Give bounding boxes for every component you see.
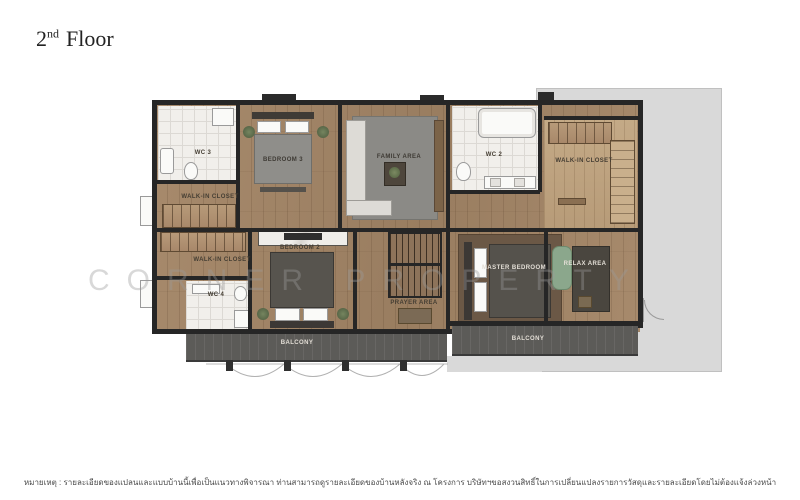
title-ordinal: nd (47, 27, 59, 41)
bed-headboard (270, 321, 334, 328)
sink (490, 178, 501, 187)
stair-divider (388, 263, 442, 266)
wardrobe (160, 232, 246, 252)
room-label-relax-area: RELAX AREA (564, 261, 607, 267)
sofa (346, 120, 366, 204)
wall (544, 230, 548, 326)
bed-blanket (270, 252, 334, 308)
title-number: 2 (36, 26, 47, 51)
room-label-master-bedroom: MASTER BEDROOM (482, 265, 546, 271)
plant (389, 167, 400, 178)
wall (338, 103, 342, 230)
plant (243, 126, 255, 138)
wall (450, 190, 540, 194)
room-label-wc4: WC 4 (208, 292, 225, 298)
washbasin (160, 148, 174, 174)
room-label-bedroom2: BEDROOM 2 (280, 245, 320, 251)
bed-blanket (489, 244, 551, 318)
wardrobe (162, 204, 236, 228)
balcony-post (400, 360, 407, 371)
bed-bench (260, 187, 306, 192)
side-table (578, 296, 592, 308)
pillow (285, 121, 309, 133)
chaise-lounge (552, 246, 572, 290)
wall (152, 100, 643, 105)
wardrobe (548, 122, 612, 144)
room-label-wc3: WC 3 (195, 150, 212, 156)
shower (212, 108, 234, 126)
floor-plan-page: 2ndFloor CORNER PROPERTY (0, 0, 800, 500)
plant (257, 308, 269, 320)
wall (638, 100, 643, 328)
room-label-prayer-area: PRAYER AREA (390, 300, 437, 306)
room-label-walkin-right: WALK-IN CLOSET (555, 158, 612, 164)
balcony-post (284, 360, 291, 371)
page-title: 2ndFloor (36, 26, 114, 52)
awning-arcs (206, 363, 448, 390)
toilet (234, 286, 247, 301)
bench (558, 198, 586, 205)
wall (155, 276, 250, 280)
toilet (456, 162, 471, 181)
wall (446, 103, 450, 332)
wall (152, 100, 157, 334)
tv (284, 233, 322, 240)
wall (155, 228, 640, 232)
wall (248, 230, 252, 332)
pillow (474, 282, 487, 312)
tv-console (434, 120, 444, 212)
sofa (346, 200, 392, 216)
room-label-bedroom3: BEDROOM 3 (263, 157, 303, 163)
bed-headboard (464, 242, 472, 320)
wall (544, 116, 641, 120)
wall (538, 103, 542, 192)
pillow (257, 121, 281, 133)
pillow (474, 248, 487, 278)
bathtub (478, 108, 536, 138)
balcony-post (342, 360, 349, 371)
title-word: Floor (66, 26, 114, 51)
closet-shelves (610, 140, 635, 224)
plant (337, 308, 349, 320)
toilet (184, 162, 198, 180)
room-label-family-area: FAMILY AREA (377, 154, 421, 160)
balcony-right-deck (452, 326, 638, 356)
wall (353, 230, 357, 332)
room-label-walkin-left: WALK-IN CLOSET (193, 257, 250, 263)
pillow (275, 308, 300, 321)
bed-headboard (252, 112, 314, 119)
room-label-balcony-right: BALCONY (512, 336, 544, 342)
plant (317, 126, 329, 138)
sink (514, 178, 525, 187)
wall (152, 329, 452, 334)
room-label-wc2: WC 2 (486, 152, 503, 158)
wall (155, 180, 238, 184)
room-label-walkin-upper: WALK-IN CLOSET (181, 194, 238, 200)
terrace-strip (447, 356, 542, 372)
prayer-rug (398, 308, 432, 324)
wall (236, 103, 240, 230)
pillow (303, 308, 328, 321)
balcony-post (226, 360, 233, 371)
balcony-left-deck (186, 332, 447, 362)
room-label-balcony-left: BALCONY (281, 340, 313, 346)
disclaimer-text: หมายเหตุ : รายละเอียดของแปลนและแบบบ้านนี… (0, 476, 800, 489)
